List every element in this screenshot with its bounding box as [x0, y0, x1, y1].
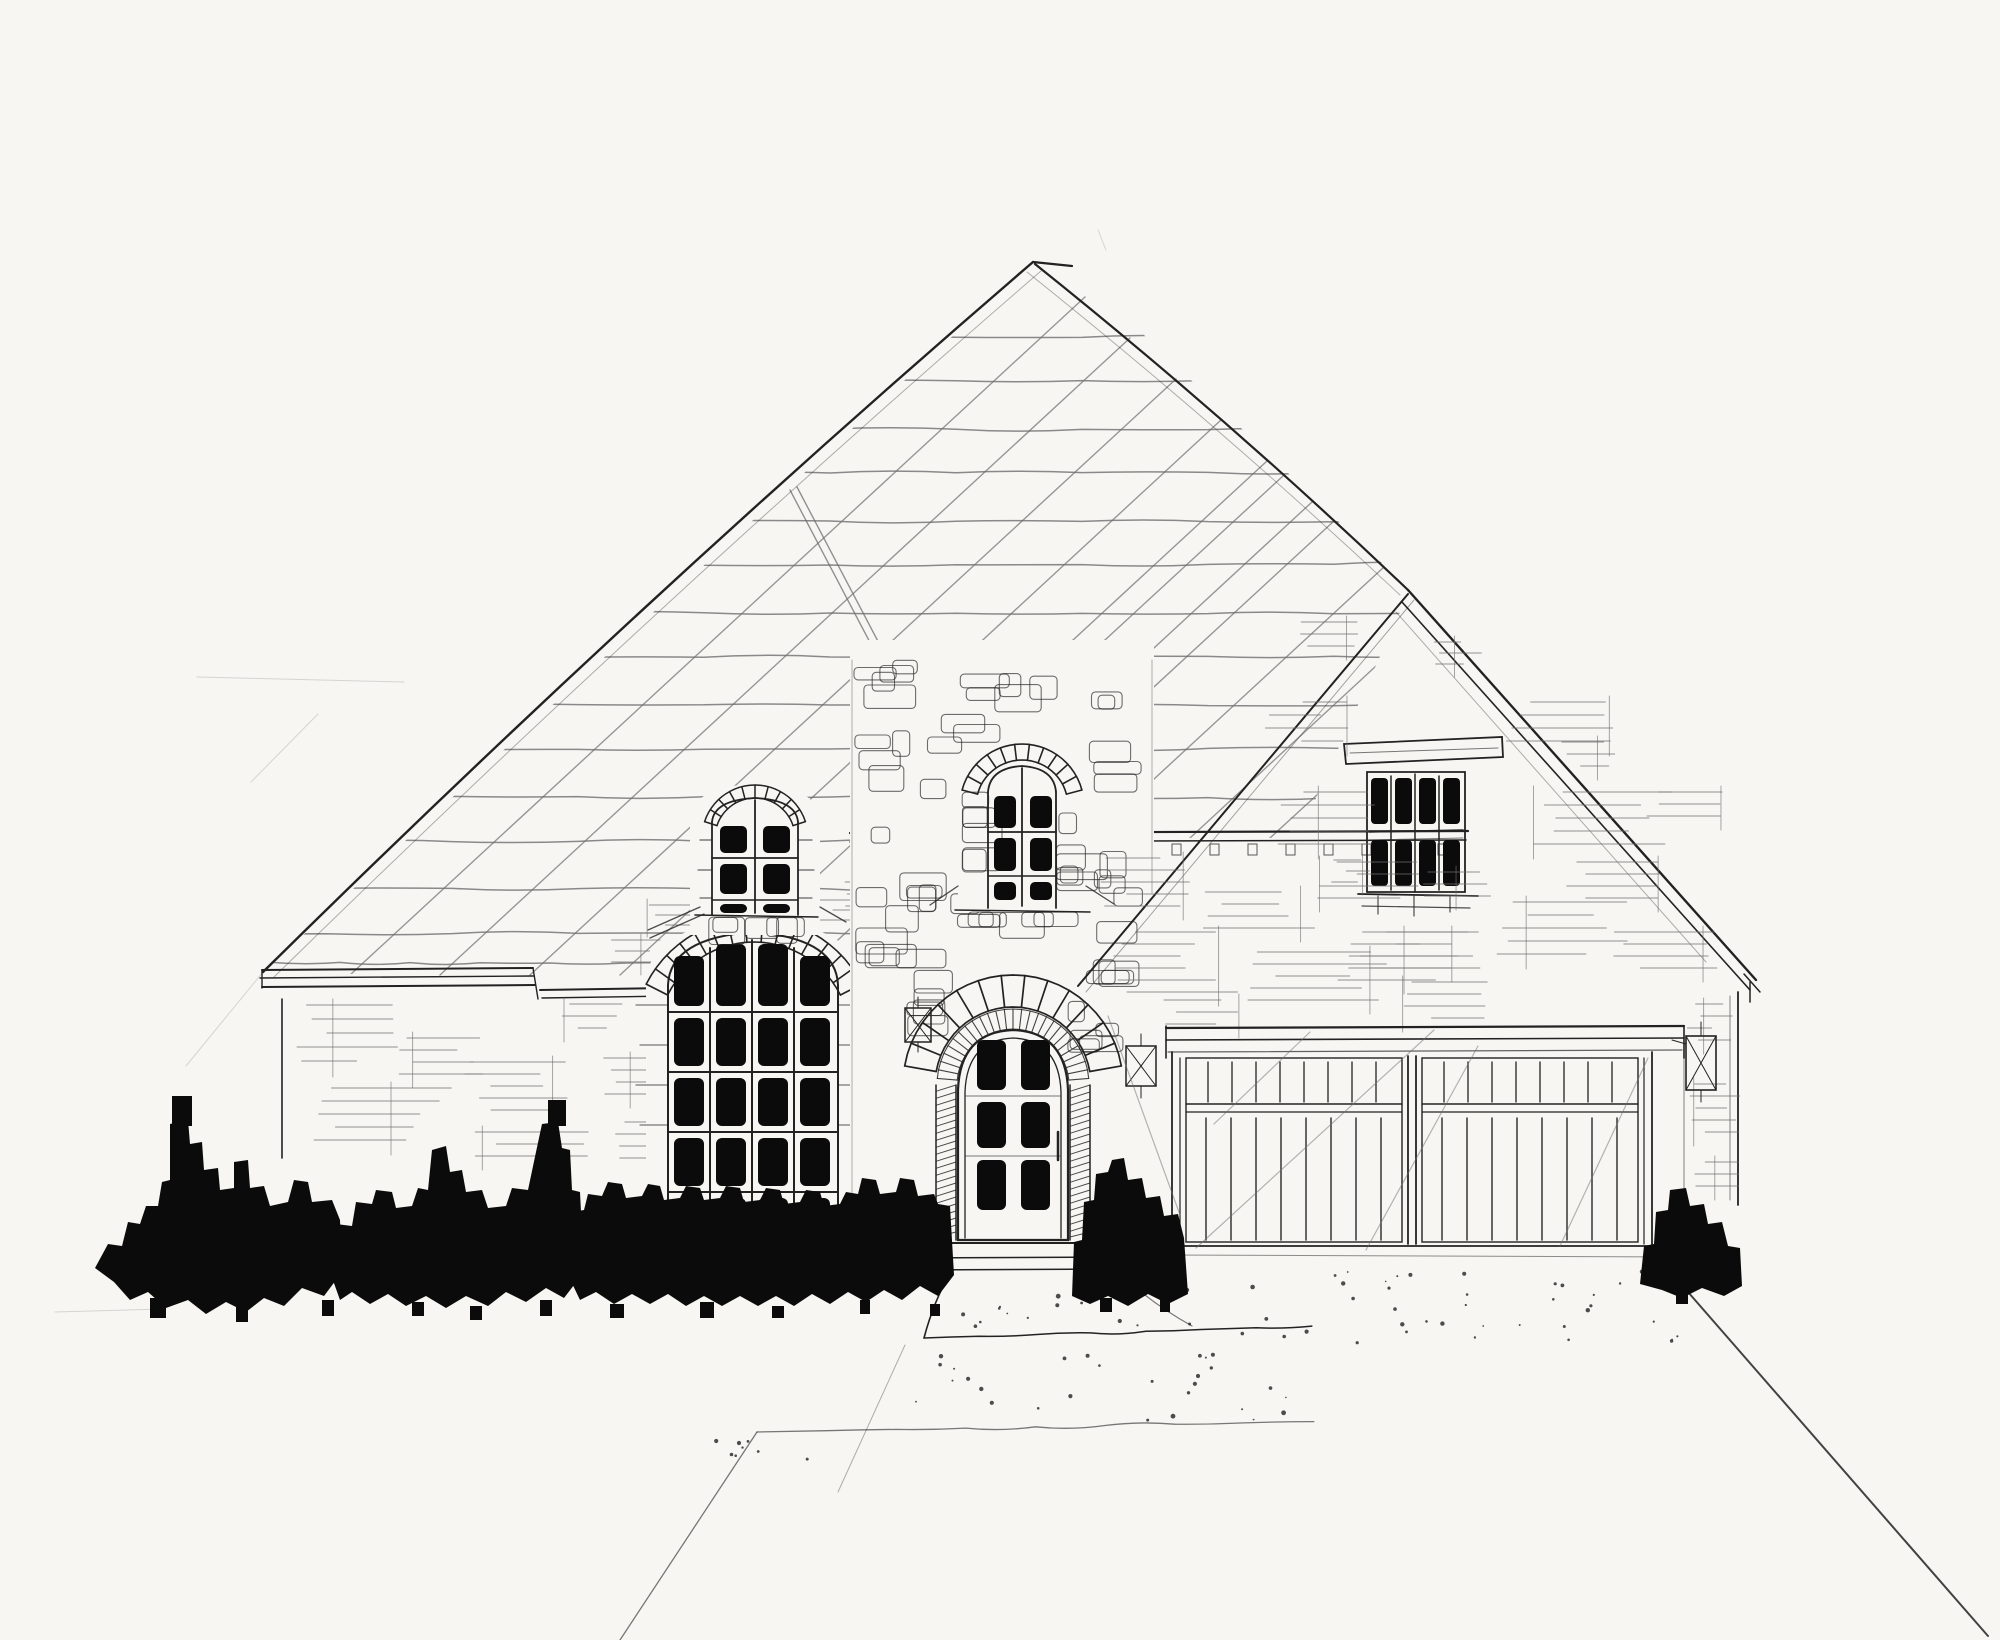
- sketch-page: [0, 0, 2000, 1640]
- house-elevation-sketch: [0, 0, 2000, 1640]
- door-slab: [958, 1030, 1068, 1240]
